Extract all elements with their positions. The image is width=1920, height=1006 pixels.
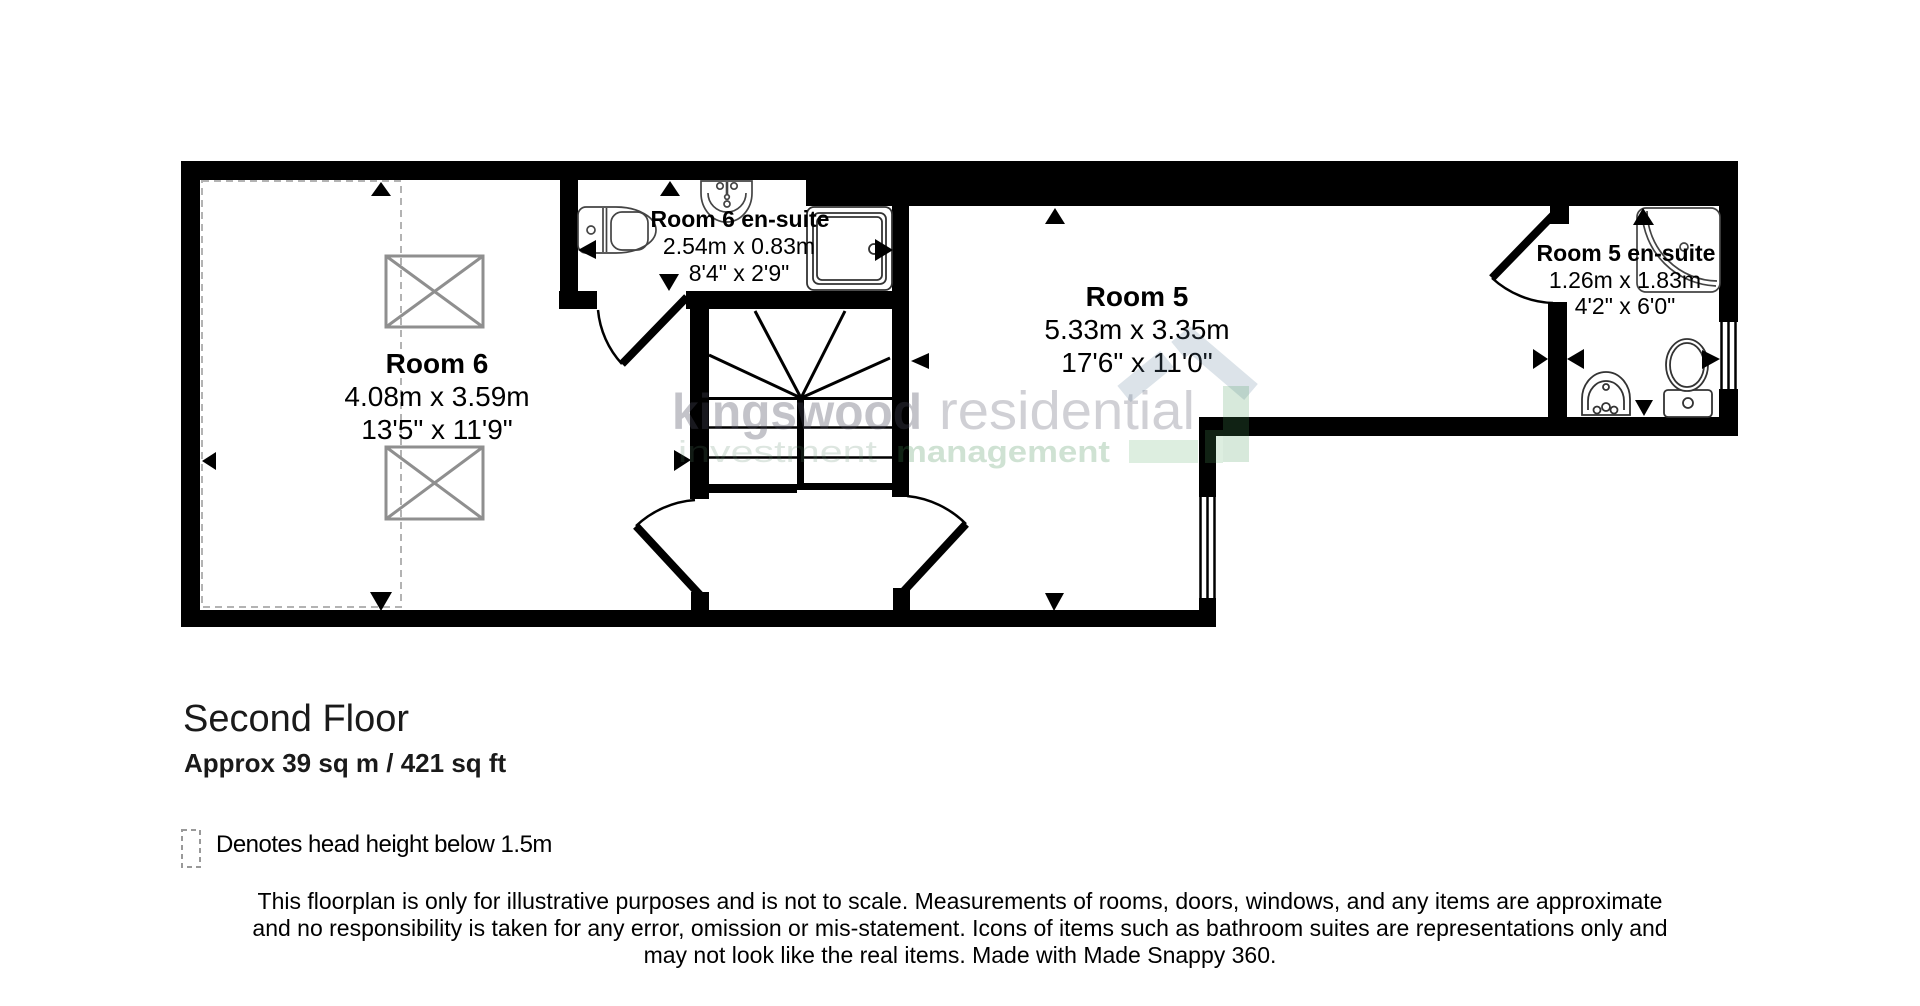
- svg-text:residential: residential: [939, 381, 1195, 441]
- svg-text:13'5" x 11'9": 13'5" x 11'9": [361, 414, 512, 445]
- svg-text:and no responsibility is taken: and no responsibility is taken for any e…: [252, 915, 1667, 941]
- svg-text:Second Floor: Second Floor: [183, 698, 409, 740]
- svg-text:4'2" x 6'0": 4'2" x 6'0": [1575, 293, 1676, 319]
- svg-text:Room 6 en-suite: Room 6 en-suite: [651, 206, 830, 232]
- svg-text:This floorplan is only for ill: This floorplan is only for illustrative …: [258, 888, 1663, 914]
- svg-text:8'4" x 2'9": 8'4" x 2'9": [689, 260, 790, 286]
- svg-text:Room 5 en-suite: Room 5 en-suite: [1537, 240, 1716, 266]
- svg-text:may not look like the real ite: may not look like the real items. Made w…: [644, 942, 1277, 968]
- svg-text:1.26m x 1.83m: 1.26m x 1.83m: [1549, 267, 1701, 293]
- svg-text:2.54m x 0.83m: 2.54m x 0.83m: [663, 233, 815, 259]
- svg-text:kingswood: kingswood: [672, 384, 922, 440]
- svg-text:management: management: [896, 434, 1110, 469]
- svg-text:Approx 39 sq m / 421 sq ft: Approx 39 sq m / 421 sq ft: [184, 748, 507, 778]
- svg-text:Denotes head height below 1.5m: Denotes head height below 1.5m: [216, 831, 552, 858]
- svg-text:4.08m x 3.59m: 4.08m x 3.59m: [344, 381, 529, 412]
- svg-text:Room 5: Room 5: [1086, 281, 1189, 312]
- svg-text:investment: investment: [678, 434, 878, 469]
- svg-text:Room 6: Room 6: [386, 348, 489, 379]
